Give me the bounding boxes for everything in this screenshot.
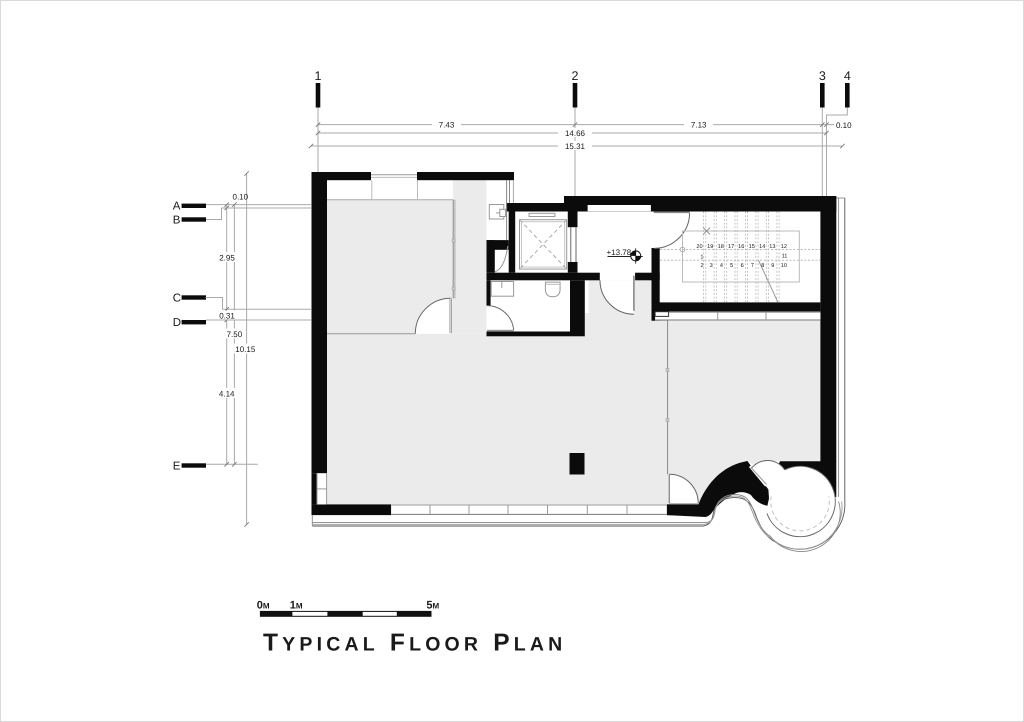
svg-text:5M: 5M — [426, 600, 439, 612]
svg-text:12: 12 — [781, 244, 787, 250]
svg-text:19: 19 — [707, 244, 713, 250]
svg-text:15: 15 — [749, 244, 755, 250]
svg-text:16: 16 — [738, 244, 744, 250]
svg-text:5: 5 — [730, 263, 733, 269]
svg-text:0.31: 0.31 — [219, 311, 235, 320]
svg-text:7.50: 7.50 — [227, 330, 243, 339]
svg-text:7.43: 7.43 — [439, 120, 455, 129]
svg-text:15.31: 15.31 — [565, 142, 586, 151]
svg-text:0M: 0M — [257, 600, 270, 612]
svg-text:14.66: 14.66 — [565, 129, 586, 138]
svg-text:11: 11 — [782, 254, 788, 260]
svg-text:9: 9 — [771, 263, 774, 269]
svg-text:TYPICAL FLOOR PLAN: TYPICAL FLOOR PLAN — [263, 630, 566, 657]
svg-text:D: D — [173, 317, 181, 329]
svg-text:E: E — [173, 460, 181, 472]
svg-text:1: 1 — [700, 254, 703, 260]
svg-text:1M: 1M — [290, 600, 303, 612]
svg-text:7: 7 — [751, 263, 754, 269]
svg-text:10: 10 — [781, 263, 787, 269]
svg-text:1: 1 — [315, 69, 322, 83]
svg-text:6: 6 — [741, 263, 744, 269]
svg-text:4: 4 — [844, 69, 851, 83]
svg-text:3: 3 — [710, 263, 713, 269]
svg-text:8: 8 — [761, 263, 764, 269]
svg-text:B: B — [173, 214, 181, 226]
svg-text:2: 2 — [572, 69, 579, 83]
svg-text:+13.78: +13.78 — [607, 248, 632, 257]
svg-text:10.15: 10.15 — [235, 345, 256, 354]
svg-text:13: 13 — [769, 244, 775, 250]
svg-text:2.95: 2.95 — [219, 254, 235, 263]
svg-text:14: 14 — [759, 244, 765, 250]
svg-text:2: 2 — [701, 263, 704, 269]
svg-text:20: 20 — [696, 244, 702, 250]
svg-text:A: A — [173, 201, 181, 213]
svg-text:17: 17 — [728, 244, 734, 250]
svg-text:0.10: 0.10 — [836, 121, 852, 130]
svg-text:3: 3 — [819, 69, 826, 83]
svg-text:4: 4 — [720, 263, 723, 269]
svg-text:7.13: 7.13 — [691, 120, 707, 129]
svg-text:0.10: 0.10 — [233, 193, 249, 202]
svg-text:C: C — [173, 292, 181, 304]
svg-text:4.14: 4.14 — [219, 389, 235, 398]
svg-text:18: 18 — [718, 244, 724, 250]
